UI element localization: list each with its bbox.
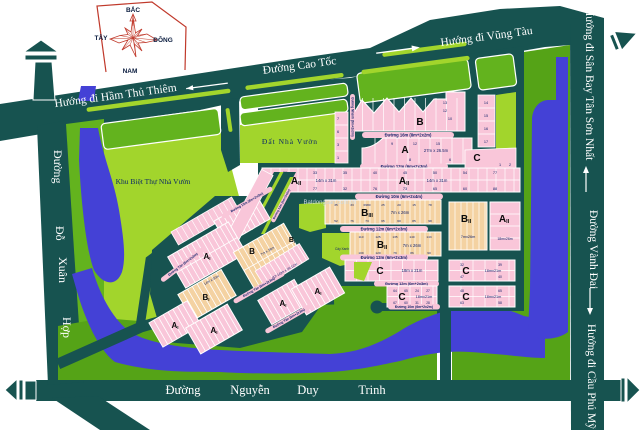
svg-text:1: 1 xyxy=(337,156,339,160)
svg-text:125: 125 xyxy=(375,235,380,239)
svg-text:27m x 26.5m: 27m x 26.5m xyxy=(424,148,449,153)
svg-text:Đường 12m (6m+2x3m): Đường 12m (6m+2x3m) xyxy=(361,226,408,231)
svg-text:Batdongsan.com.vn: Batdongsan.com.vn xyxy=(303,200,356,206)
svg-text:B: B xyxy=(249,247,255,256)
svg-text:A: A xyxy=(401,145,408,156)
svg-text:76: 76 xyxy=(350,219,354,223)
svg-text:54: 54 xyxy=(463,171,467,175)
svg-text:2: 2 xyxy=(509,163,511,167)
svg-text:7mx26m: 7mx26m xyxy=(461,235,476,239)
svg-text:Cây Xanh: Cây Xanh xyxy=(335,247,349,251)
svg-text:14m x 31m: 14m x 31m xyxy=(427,178,448,183)
svg-text:14: 14 xyxy=(484,101,488,105)
svg-text:1: 1 xyxy=(499,163,501,167)
svg-text:7m x 26m: 7m x 26m xyxy=(403,243,422,248)
svg-text:60: 60 xyxy=(397,219,401,223)
svg-text:65: 65 xyxy=(381,219,385,223)
svg-text:TÂY: TÂY xyxy=(95,33,109,42)
svg-text:Hợp: Hợp xyxy=(60,317,74,338)
svg-text:15: 15 xyxy=(436,142,440,146)
svg-text:32: 32 xyxy=(343,187,347,191)
svg-text:Đường: Đường xyxy=(166,383,202,397)
svg-text:7m x 26m: 7m x 26m xyxy=(391,210,410,215)
svg-text:C: C xyxy=(473,153,480,164)
svg-text:58: 58 xyxy=(498,301,502,305)
svg-text:73: 73 xyxy=(365,219,369,223)
svg-text:C: C xyxy=(376,266,383,277)
svg-text:86: 86 xyxy=(410,251,414,255)
svg-text:12: 12 xyxy=(443,109,447,113)
svg-text:73: 73 xyxy=(403,187,407,191)
svg-text:Đường: Đường xyxy=(51,150,65,184)
svg-text:Hướng đi Sân Bay Tân Sơn Nhất: Hướng đi Sân Bay Tân Sơn Nhất xyxy=(583,8,596,161)
svg-text:BẮC: BẮC xyxy=(126,5,140,14)
svg-text:65: 65 xyxy=(498,289,502,293)
svg-text:65: 65 xyxy=(433,187,437,191)
svg-text:Nguyễn: Nguyễn xyxy=(230,383,270,397)
svg-text:6: 6 xyxy=(449,158,451,162)
svg-text:33: 33 xyxy=(313,171,317,175)
svg-text:27: 27 xyxy=(426,289,430,293)
svg-text:Đất Nhà Vườn: Đất Nhà Vườn xyxy=(262,137,318,146)
svg-text:8: 8 xyxy=(409,158,411,162)
svg-text:ĐÔNG: ĐÔNG xyxy=(153,35,173,44)
svg-text:40: 40 xyxy=(498,275,502,279)
svg-text:Đường 10m (6m+2x4m): Đường 10m (6m+2x4m) xyxy=(376,194,423,199)
svg-text:18m x 21m: 18m x 21m xyxy=(402,268,423,273)
svg-text:50: 50 xyxy=(433,171,437,175)
svg-text:Đỗ: Đỗ xyxy=(53,226,67,241)
svg-text:35: 35 xyxy=(343,171,347,175)
svg-text:Đường 10m (6m+2x2m): Đường 10m (6m+2x2m) xyxy=(395,305,433,309)
svg-text:7: 7 xyxy=(337,117,339,121)
svg-text:140: 140 xyxy=(409,235,414,239)
svg-text:135: 135 xyxy=(392,235,397,239)
svg-text:13: 13 xyxy=(443,101,447,105)
svg-text:76: 76 xyxy=(373,187,377,191)
svg-text:85: 85 xyxy=(412,219,416,223)
svg-text:Khu Biệt Thự Nhà Vườn: Khu Biệt Thự Nhà Vườn xyxy=(116,177,191,186)
svg-text:65: 65 xyxy=(404,289,408,293)
svg-text:40: 40 xyxy=(373,171,377,175)
svg-text:20: 20 xyxy=(397,203,401,207)
svg-text:77: 77 xyxy=(493,171,497,175)
svg-text:17: 17 xyxy=(484,140,488,144)
svg-text:52: 52 xyxy=(334,219,338,223)
svg-text:63: 63 xyxy=(460,301,464,305)
svg-text:25: 25 xyxy=(381,203,385,207)
svg-text:Đường Nhánh (6m+2x3m): Đường Nhánh (6m+2x3m) xyxy=(351,97,355,136)
svg-text:78: 78 xyxy=(428,203,432,207)
svg-text:3: 3 xyxy=(337,143,339,147)
svg-text:15: 15 xyxy=(484,114,488,118)
svg-text:90: 90 xyxy=(427,251,431,255)
svg-text:Đường Vành Đai: Đường Vành Đai xyxy=(587,210,599,289)
svg-text:14m x 31m: 14m x 31m xyxy=(316,178,337,183)
svg-text:Duy: Duy xyxy=(297,383,319,397)
svg-text:Hướng đi Cầu Phú Mỹ: Hướng đi Cầu Phú Mỹ xyxy=(585,324,598,429)
svg-text:15: 15 xyxy=(412,203,416,207)
svg-text:60: 60 xyxy=(463,187,467,191)
svg-text:16: 16 xyxy=(484,127,488,131)
svg-text:47: 47 xyxy=(460,275,464,279)
svg-text:6: 6 xyxy=(337,130,339,134)
svg-text:64: 64 xyxy=(393,289,397,293)
svg-text:18mx21m: 18mx21m xyxy=(416,295,433,299)
svg-text:143: 143 xyxy=(426,235,431,239)
svg-text:Đường 12m (6m+2x3m): Đường 12m (6m+2x3m) xyxy=(385,282,428,286)
svg-text:45: 45 xyxy=(403,171,407,175)
svg-text:B: B xyxy=(416,117,423,128)
svg-text:Đường 16m (8m+2x2m): Đường 16m (8m+2x2m) xyxy=(385,132,432,137)
svg-text:Xuân: Xuân xyxy=(56,257,70,283)
svg-text:12: 12 xyxy=(413,142,417,146)
svg-text:9: 9 xyxy=(391,142,393,146)
svg-text:18mx21m: 18mx21m xyxy=(485,269,502,273)
svg-text:Đường 12m (6m+2x3m): Đường 12m (6m+2x3m) xyxy=(361,255,408,260)
svg-text:18mx21m: 18mx21m xyxy=(485,295,502,299)
svg-text:10: 10 xyxy=(448,117,452,121)
svg-text:24: 24 xyxy=(415,289,419,293)
svg-text:NAM: NAM xyxy=(123,68,138,75)
svg-text:18mx26m: 18mx26m xyxy=(497,237,512,241)
svg-text:77: 77 xyxy=(313,187,317,191)
svg-text:98: 98 xyxy=(428,219,432,223)
svg-text:32: 32 xyxy=(460,263,464,267)
svg-text:39: 39 xyxy=(498,263,502,267)
svg-text:0980: 0980 xyxy=(364,203,371,207)
svg-text:88: 88 xyxy=(493,187,497,191)
svg-text:Trinh: Trinh xyxy=(358,383,386,397)
svg-text:110: 110 xyxy=(359,235,364,239)
svg-text:48: 48 xyxy=(460,289,464,293)
